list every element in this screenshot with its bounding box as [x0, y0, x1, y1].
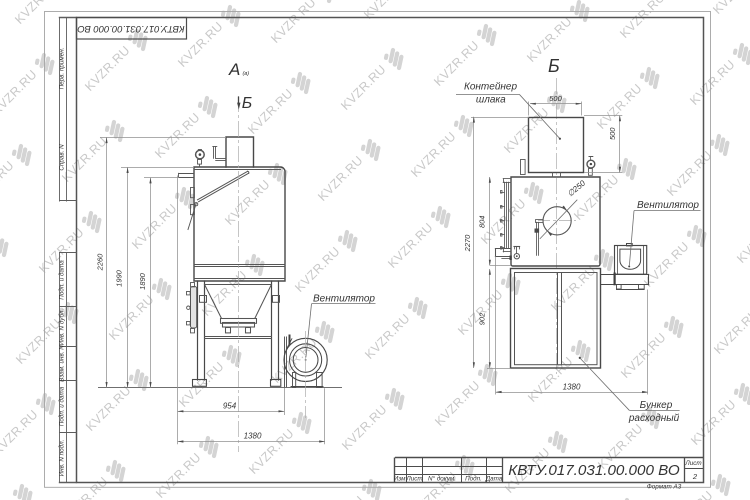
- svg-text:Б: Б: [548, 56, 560, 76]
- svg-text:902: 902: [477, 312, 486, 325]
- svg-text:1990: 1990: [115, 269, 124, 287]
- svg-text:Подп.: Подп.: [465, 475, 482, 483]
- svg-text:расходный: расходный: [628, 413, 680, 424]
- svg-text:Бункер: Бункер: [640, 400, 673, 411]
- svg-text:КВТУ.017.031.00.000 ВО: КВТУ.017.031.00.000 ВО: [77, 23, 185, 34]
- svg-text:Изм.: Изм.: [394, 476, 407, 483]
- svg-text:1380: 1380: [563, 382, 581, 391]
- svg-text:Подп. и дата: Подп. и дата: [58, 260, 66, 300]
- svg-text:Б: Б: [242, 95, 252, 112]
- svg-text:Лист: Лист: [684, 460, 701, 467]
- svg-text:Вентилятор: Вентилятор: [637, 200, 699, 211]
- svg-text:А: А: [228, 60, 240, 79]
- svg-text:Инв. N дубл.: Инв. N дубл.: [58, 309, 66, 345]
- svg-text:Контейнер: Контейнер: [464, 82, 517, 93]
- svg-text:2260: 2260: [96, 253, 105, 272]
- svg-text:954: 954: [223, 401, 237, 410]
- svg-text:Взам. инв. N: Взам. инв. N: [59, 345, 66, 382]
- svg-text:шлака: шлака: [476, 94, 506, 105]
- svg-text:804: 804: [478, 216, 487, 229]
- svg-text:500: 500: [608, 127, 617, 140]
- svg-text:2: 2: [692, 472, 698, 481]
- svg-text:Инв. N подл.: Инв. N подл.: [58, 440, 66, 477]
- svg-text:Дата: Дата: [485, 476, 503, 483]
- svg-text:1380: 1380: [244, 432, 262, 441]
- svg-text:1890: 1890: [138, 272, 147, 290]
- svg-text:Справ. N: Справ. N: [59, 144, 66, 171]
- svg-text:Перв. примен.: Перв. примен.: [59, 48, 66, 90]
- svg-text:N° докум.: N° докум.: [428, 475, 456, 483]
- svg-text:КВТУ.017.031.00.000 ВО: КВТУ.017.031.00.000 ВО: [508, 462, 680, 479]
- svg-text:Подп. и дата: Подп. и дата: [58, 386, 66, 426]
- svg-text:Вентилятор: Вентилятор: [313, 294, 375, 305]
- svg-text:500: 500: [549, 94, 562, 103]
- svg-text:Лист: Лист: [405, 476, 422, 483]
- svg-text:Формат А3: Формат А3: [647, 484, 682, 491]
- svg-text:(в): (в): [243, 71, 250, 77]
- svg-text:2270: 2270: [463, 234, 472, 253]
